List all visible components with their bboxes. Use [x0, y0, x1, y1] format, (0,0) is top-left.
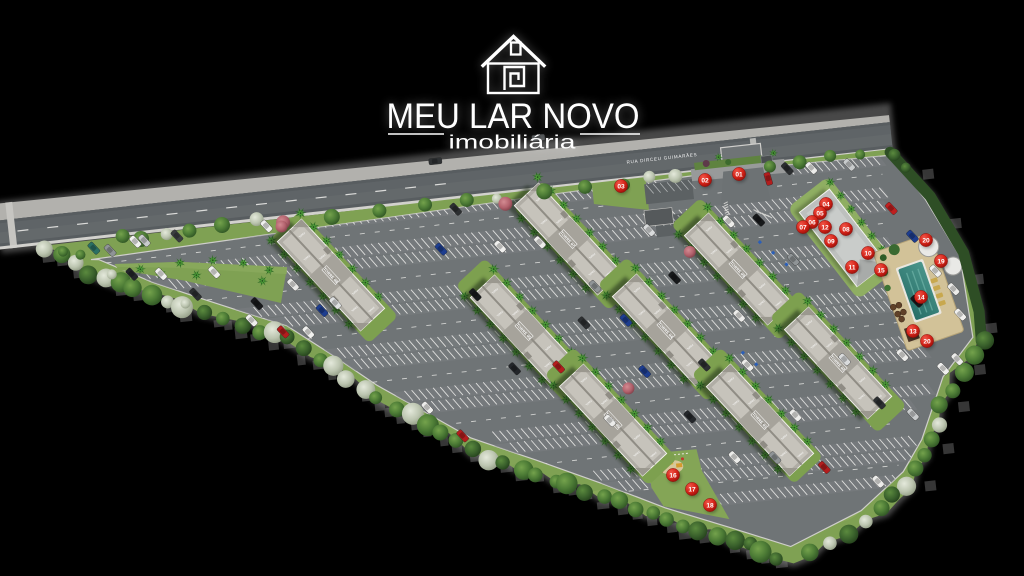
svg-text:imobiliária: imobiliária: [449, 133, 577, 154]
svg-text:03: 03: [617, 183, 625, 190]
svg-text:19: 19: [937, 258, 945, 265]
svg-text:02: 02: [701, 177, 709, 184]
svg-text:01: 01: [735, 171, 743, 178]
svg-text:11: 11: [849, 264, 856, 271]
svg-text:10: 10: [864, 250, 872, 257]
svg-text:08: 08: [842, 226, 850, 233]
svg-text:MEU LAR NOVO: MEU LAR NOVO: [387, 97, 640, 136]
svg-text:15: 15: [877, 267, 885, 274]
svg-text:14: 14: [917, 294, 925, 301]
svg-text:12: 12: [821, 224, 829, 231]
svg-text:09: 09: [827, 238, 835, 245]
svg-text:05: 05: [816, 210, 824, 217]
svg-text:20: 20: [922, 237, 930, 244]
svg-text:18: 18: [706, 502, 714, 509]
svg-text:07: 07: [799, 224, 807, 231]
svg-text:17: 17: [688, 486, 696, 493]
svg-text:13: 13: [909, 328, 917, 335]
svg-text:20: 20: [923, 338, 931, 345]
svg-text:16: 16: [669, 472, 677, 479]
